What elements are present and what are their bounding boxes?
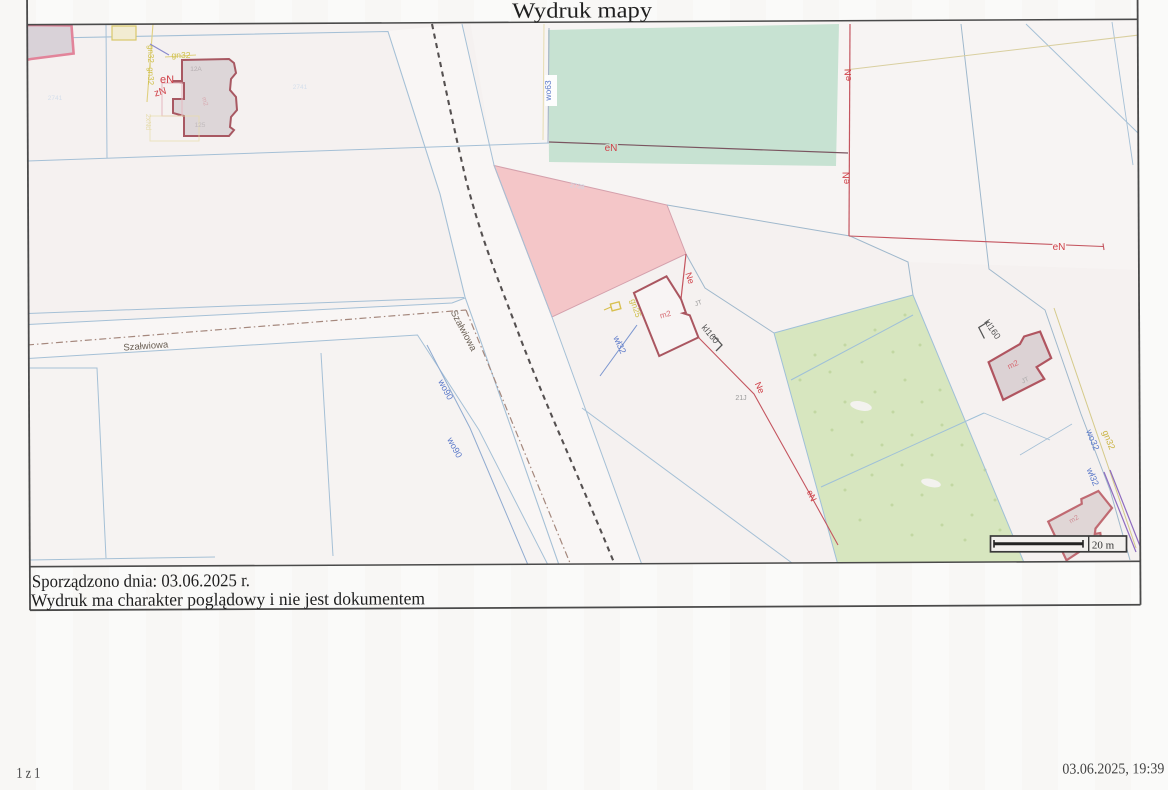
svg-text:2741: 2741 [48, 95, 63, 102]
svg-text:eN: eN [160, 74, 174, 86]
svg-text:eN: eN [1053, 242, 1066, 253]
svg-text:Wydruk mapy: Wydruk mapy [512, 0, 652, 23]
svg-text:Sporządzono dnia: 03.06.2025 r: Sporządzono dnia: 03.06.2025 r. [32, 570, 250, 591]
svg-text:eN: eN [605, 143, 618, 154]
svg-text:eN: eN [841, 172, 852, 184]
svg-text:gn32–gn32: gn32–gn32 [146, 45, 155, 86]
svg-text:2xNd: 2xNd [144, 114, 151, 130]
svg-text:wo63: wo63 [543, 80, 553, 102]
svg-text:1 z 1: 1 z 1 [16, 766, 40, 782]
svg-text:125: 125 [195, 122, 206, 129]
svg-text:Wydruk ma charakter poglądowy: Wydruk ma charakter poglądowy i nie jest… [31, 588, 425, 610]
svg-text:03.06.2025, 19:39: 03.06.2025, 19:39 [1062, 761, 1164, 777]
svg-text:21J: 21J [735, 395, 746, 402]
svg-text:eN: eN [843, 69, 854, 81]
svg-text:12A: 12A [190, 66, 202, 73]
svg-text:gn32: gn32 [172, 50, 191, 60]
svg-text:2741: 2741 [293, 84, 308, 91]
svg-text:20 m: 20 m [1092, 540, 1115, 552]
